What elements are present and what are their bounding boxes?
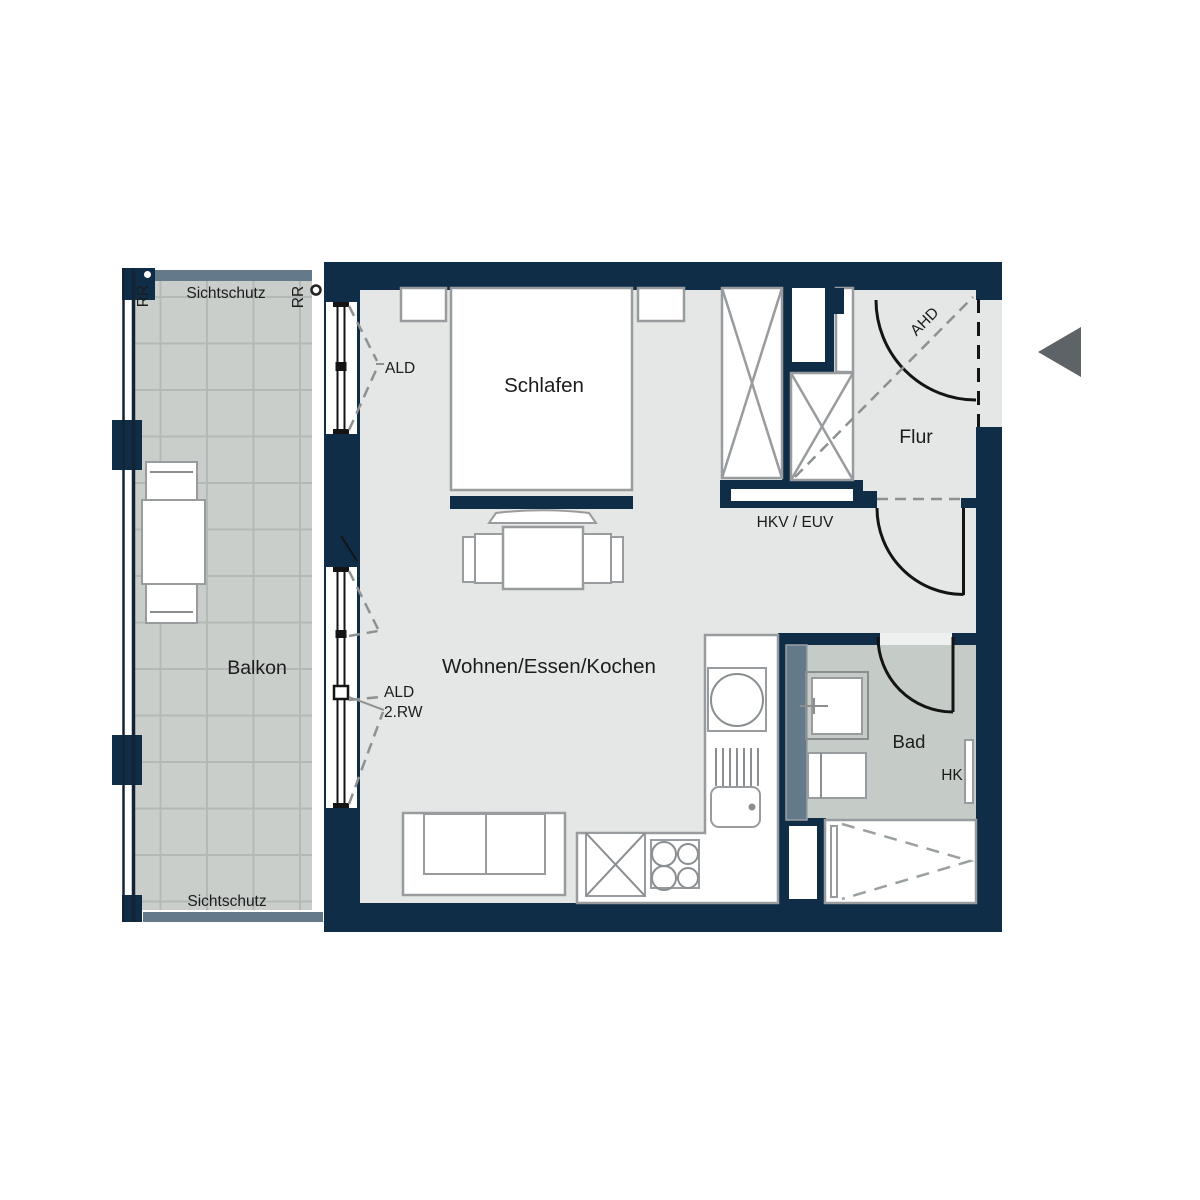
dining-set bbox=[463, 527, 623, 589]
drainer bbox=[716, 748, 758, 786]
toilet bbox=[808, 753, 866, 798]
hkv-slot bbox=[731, 489, 853, 501]
label-hk: HK bbox=[941, 767, 963, 784]
chair-right bbox=[583, 534, 611, 583]
door-jamb bbox=[863, 491, 877, 508]
label-balkon: Balkon bbox=[227, 657, 287, 679]
label-sichtschutz-top: Sichtschutz bbox=[186, 285, 265, 302]
nightstand-left bbox=[401, 288, 446, 321]
bath-door-threshold bbox=[880, 633, 952, 645]
label-bad: Bad bbox=[893, 731, 926, 752]
label-ald-top: ALD bbox=[385, 360, 415, 377]
wall-bottom bbox=[324, 903, 1002, 932]
wardrobe-a bbox=[722, 288, 782, 478]
balcony-chair-bottom bbox=[146, 584, 197, 623]
label-wohnen: Wohnen/Essen/Kochen bbox=[442, 655, 656, 678]
floor-plan-page: Sichtschutz Sichtschutz RR RR ALD Schlaf… bbox=[0, 0, 1200, 1200]
balcony-sill bbox=[312, 268, 324, 910]
balcony-furniture bbox=[142, 462, 205, 623]
shower bbox=[825, 820, 976, 903]
label-ald-bottom-1: ALD bbox=[384, 684, 414, 701]
wall-right-upper bbox=[976, 262, 1002, 300]
window-vent-box bbox=[334, 686, 348, 699]
privacy-screen-bottom bbox=[143, 912, 323, 922]
entrance-arrow-icon bbox=[1038, 327, 1081, 377]
duct-niche bbox=[789, 826, 817, 899]
nightstand-right bbox=[638, 288, 684, 321]
window-upper bbox=[326, 302, 357, 434]
sofa-cushion bbox=[424, 814, 486, 874]
label-sichtschutz-bottom: Sichtschutz bbox=[187, 893, 266, 910]
cooktop bbox=[651, 840, 699, 890]
chair-left bbox=[475, 534, 503, 583]
wall-top bbox=[324, 262, 1002, 290]
closet-duct bbox=[834, 288, 844, 314]
window-vent-mark bbox=[336, 630, 347, 638]
railing-post bbox=[112, 735, 142, 785]
label-rr-right: RR bbox=[290, 286, 307, 308]
rain-pipe-right-icon bbox=[312, 286, 321, 295]
railing-post bbox=[112, 420, 142, 470]
label-rr-left: RR bbox=[135, 285, 152, 307]
tv bbox=[489, 510, 596, 523]
label-schlafen: Schlafen bbox=[504, 374, 584, 397]
radiator bbox=[965, 740, 973, 803]
shower-glass bbox=[831, 826, 837, 897]
closet-niche bbox=[792, 288, 825, 362]
chair-left-back bbox=[463, 537, 475, 582]
label-ald-bottom-2: 2.RW bbox=[384, 704, 423, 721]
privacy-screen-top bbox=[155, 270, 312, 281]
window-vent-mark bbox=[336, 362, 347, 371]
bath-wall-stub bbox=[952, 633, 976, 645]
oven bbox=[586, 833, 645, 896]
sofa bbox=[403, 813, 565, 895]
floor-plan: Sichtschutz Sichtschutz RR RR ALD Schlaf… bbox=[0, 0, 1200, 1200]
bath-wall-top bbox=[778, 633, 880, 645]
chair-right-back bbox=[611, 537, 623, 582]
wall-right-lower bbox=[976, 427, 1002, 932]
label-hkv-euv: HKV / EUV bbox=[757, 514, 834, 531]
door-stub bbox=[961, 498, 976, 508]
balcony-chair-top bbox=[146, 462, 197, 500]
dining-table bbox=[503, 527, 583, 589]
rain-pipe-left-icon bbox=[144, 271, 151, 278]
kitchen-sink bbox=[711, 787, 760, 827]
sideboard bbox=[450, 496, 633, 509]
window-lower bbox=[326, 567, 357, 808]
label-flur: Flur bbox=[899, 426, 933, 448]
wardrobe-b bbox=[791, 373, 853, 480]
sofa-cushion bbox=[486, 814, 545, 874]
washing-machine bbox=[708, 668, 766, 731]
installation-wall bbox=[786, 645, 807, 820]
balcony-table bbox=[142, 500, 205, 584]
